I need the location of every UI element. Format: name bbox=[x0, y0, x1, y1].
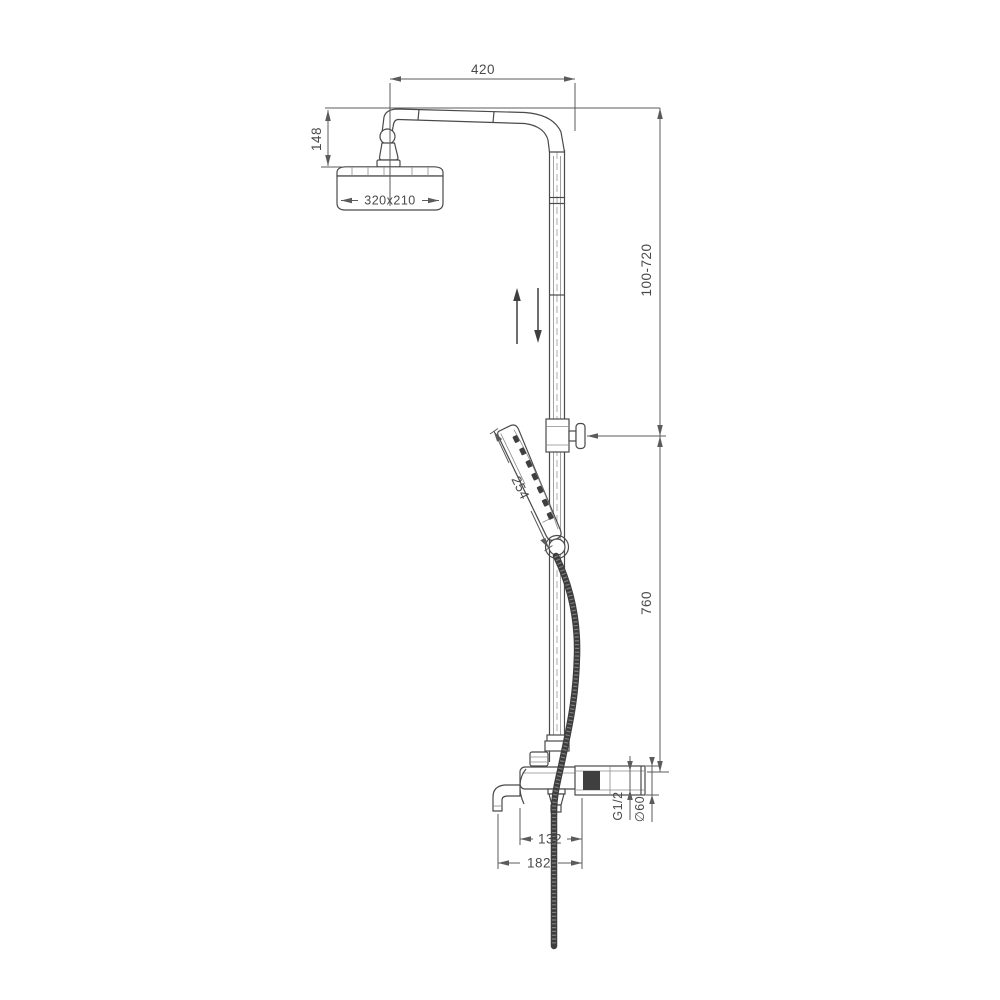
mixer-assembly bbox=[493, 735, 584, 812]
diverter-knob bbox=[530, 752, 548, 766]
dim-label-420: 420 bbox=[471, 62, 495, 77]
riser-column bbox=[550, 150, 565, 762]
shower-arm bbox=[382, 109, 565, 152]
dim-label-182: 182 bbox=[527, 856, 551, 871]
dim-label-d60: ∅60 bbox=[633, 796, 647, 822]
bracket-leader bbox=[587, 433, 656, 439]
dim-label-g12: G1/2 bbox=[611, 791, 625, 820]
dimension-adjustable-range: 100-720 bbox=[639, 108, 666, 436]
dim-label-100-720: 100-720 bbox=[639, 243, 654, 296]
dimension-lower-column: 760 bbox=[639, 436, 669, 772]
dim-label-148: 148 bbox=[309, 127, 324, 151]
shower-system-drawing: 420 148 320x210 100-720 760 bbox=[0, 0, 1000, 1000]
dim-label-132: 132 bbox=[538, 832, 562, 847]
slider-bracket bbox=[546, 419, 585, 452]
wall-flange bbox=[575, 766, 645, 795]
adjustment-arrows bbox=[513, 288, 542, 344]
technical-drawing-page: 420 148 320x210 100-720 760 bbox=[0, 0, 1000, 1000]
dimension-head-offset: 148 bbox=[309, 110, 342, 167]
dim-label-320x210: 320x210 bbox=[364, 194, 415, 208]
dim-label-760: 760 bbox=[639, 591, 654, 615]
bath-spout bbox=[493, 785, 520, 811]
head-ball-joint bbox=[377, 129, 400, 167]
